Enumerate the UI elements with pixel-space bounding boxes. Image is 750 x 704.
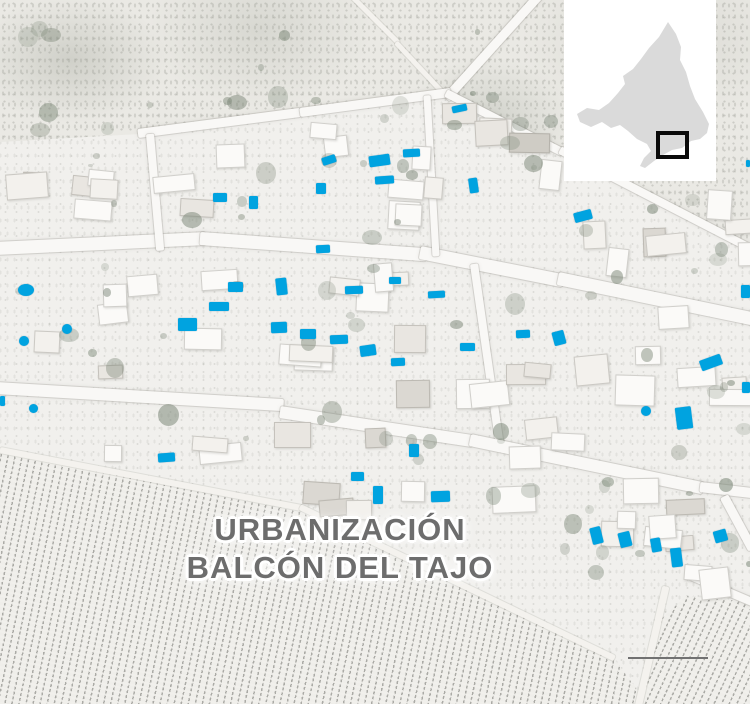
pool-marker [19, 336, 29, 346]
building [738, 241, 750, 266]
pool-marker [249, 196, 258, 209]
vegetation-patch [182, 212, 202, 229]
vegetation-patch [635, 550, 644, 557]
pool-marker [275, 277, 288, 295]
building [394, 324, 426, 352]
pool-marker [742, 382, 750, 393]
vegetation-patch [256, 162, 276, 184]
vegetation-patch [30, 123, 50, 137]
pool-marker [460, 343, 475, 351]
vegetation-patch [686, 491, 693, 496]
vegetation-patch [512, 117, 529, 131]
vegetation-patch [317, 415, 325, 425]
building [184, 328, 223, 351]
vegetation-patch [348, 318, 365, 332]
building [423, 176, 444, 200]
vegetation-patch [505, 293, 525, 315]
pool-marker [403, 149, 420, 158]
pool-marker [62, 324, 72, 334]
vegetation-patch [746, 561, 750, 567]
building [274, 422, 311, 448]
vegetation-patch [611, 270, 623, 283]
vegetation-patch [223, 97, 232, 105]
inset-locator-map [564, 0, 716, 181]
vegetation-patch [599, 480, 609, 492]
place-label-line1: URBANIZACIÓN [110, 511, 570, 549]
pool-marker [213, 193, 227, 202]
pool-marker [431, 491, 450, 503]
vegetation-patch [360, 160, 367, 166]
place-label-line2: BALCÓN DEL TAJO [110, 549, 570, 587]
vegetation-patch [521, 483, 541, 497]
vegetation-patch [18, 27, 37, 46]
vegetation-patch [158, 404, 179, 426]
pool-marker [351, 472, 364, 481]
building [574, 353, 611, 387]
pool-marker [741, 285, 750, 298]
building [73, 198, 112, 221]
vegetation-patch [111, 200, 117, 206]
pool-marker [375, 175, 395, 184]
pool-marker [409, 444, 419, 457]
building [508, 446, 541, 470]
scale-bar [628, 657, 708, 659]
vegetation-patch [392, 96, 409, 115]
building [623, 477, 660, 504]
building [126, 274, 159, 298]
vegetation-patch [486, 92, 499, 103]
madrid-region-silhouette [564, 0, 716, 181]
vegetation-patch [500, 136, 520, 150]
building [401, 481, 425, 502]
building [706, 190, 733, 221]
vegetation-patch [367, 264, 380, 273]
building [698, 566, 731, 600]
vegetation-patch [243, 436, 248, 442]
vegetation-patch [715, 242, 728, 257]
building [216, 143, 246, 168]
building [676, 365, 716, 388]
pool-marker [359, 344, 376, 357]
pool-marker [516, 330, 530, 338]
vegetation-patch [671, 445, 686, 460]
vegetation-patch [493, 423, 509, 439]
building [396, 380, 430, 409]
pool-marker [316, 183, 326, 194]
pool-marker [641, 406, 651, 416]
region-shape [577, 22, 709, 168]
building [657, 305, 690, 330]
vegetation-patch [423, 434, 437, 448]
vegetation-patch [279, 30, 290, 40]
building [5, 171, 49, 200]
pool-marker [0, 396, 5, 406]
vegetation-patch [101, 263, 109, 271]
building [551, 432, 586, 451]
vegetation-patch [691, 268, 698, 274]
vegetation-patch [311, 97, 320, 105]
pool-marker [178, 318, 197, 331]
pool-marker [389, 277, 401, 284]
vegetation-patch [685, 194, 700, 205]
pool-marker [300, 329, 316, 339]
vegetation-patch [736, 423, 750, 435]
place-label: URBANIZACIÓN BALCÓN DEL TAJO [110, 511, 570, 587]
building [104, 445, 123, 463]
vegetation-patch [237, 196, 247, 206]
vegetation-patch [579, 224, 593, 237]
pool-marker [746, 160, 750, 167]
building [616, 511, 635, 530]
pool-marker [316, 245, 330, 254]
building [645, 232, 687, 257]
pool-marker [271, 322, 287, 334]
building [33, 331, 60, 354]
building [192, 436, 229, 454]
pool-marker [391, 358, 405, 366]
building [724, 218, 750, 235]
pool-marker [18, 284, 34, 296]
vegetation-patch [475, 29, 480, 34]
vegetation-patch [101, 122, 114, 135]
vegetation-patch [486, 487, 501, 504]
roundabout-island [719, 478, 733, 492]
vegetation-patch [727, 380, 735, 386]
pool-marker [670, 547, 683, 567]
vegetation-patch [106, 358, 124, 378]
pool-marker [158, 452, 176, 462]
vegetation-patch [268, 86, 288, 107]
pool-marker [373, 486, 383, 504]
building [469, 380, 511, 409]
map-canvas: URBANIZACIÓN BALCÓN DEL TAJO [0, 0, 750, 704]
vegetation-patch [322, 401, 342, 424]
pool-marker [209, 302, 229, 311]
pool-marker [29, 404, 38, 413]
vegetation-patch [394, 219, 401, 225]
pool-marker [228, 282, 243, 292]
pool-marker [330, 335, 348, 345]
building [523, 362, 552, 380]
vegetation-patch [531, 165, 537, 170]
building [649, 514, 678, 539]
pool-marker [675, 406, 694, 430]
building [90, 178, 119, 200]
pool-marker [428, 291, 445, 299]
vegetation-patch [585, 505, 594, 514]
vegetation-patch [406, 170, 418, 179]
building [614, 374, 655, 406]
pool-marker [345, 286, 363, 295]
vegetation-patch [318, 281, 336, 300]
vegetation-patch [346, 312, 355, 319]
pool-marker [468, 177, 479, 193]
vegetation-patch [720, 382, 729, 391]
vegetation-patch [39, 103, 58, 122]
building [309, 122, 337, 140]
